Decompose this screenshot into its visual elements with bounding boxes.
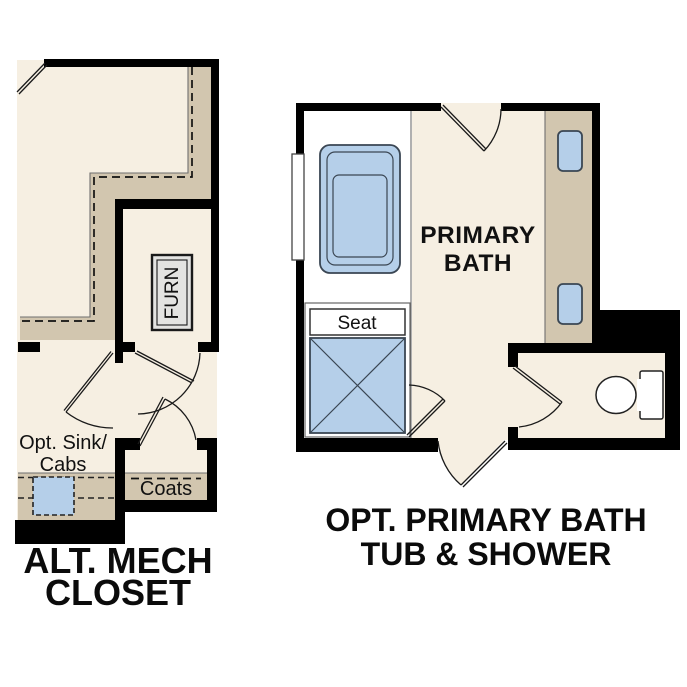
coats-label: Coats (140, 478, 192, 500)
hall-floor (17, 352, 217, 438)
opt-sink-label-line1: Opt. Sink/ (19, 432, 107, 454)
right-plan-title-line2: TUB & SHOWER (361, 536, 612, 572)
toilet-bowl (596, 377, 636, 414)
alt-mech-closet-plan: FURN Opt. Sink/ Cabs Coats ALT. MECH CLO… (15, 59, 219, 613)
bathtub (320, 145, 400, 273)
room-label-line1: PRIMARY (420, 222, 536, 249)
floorplan-canvas: FURN Opt. Sink/ Cabs Coats ALT. MECH CLO… (0, 0, 687, 687)
coats-door-opening (140, 438, 197, 452)
vanity-counter (545, 111, 592, 345)
seat-label: Seat (337, 313, 377, 334)
vanity-sink-bottom (558, 284, 582, 324)
toilet-door-opening (508, 367, 518, 427)
right-plan-title-line1: OPT. PRIMARY BATH (325, 502, 646, 538)
opt-primary-bath-plan: Seat PRIMARY BATH O (292, 103, 680, 572)
room-label-line2: BATH (444, 250, 512, 277)
shower-enclosure: Seat (305, 303, 410, 437)
toilet-neck (637, 379, 646, 411)
opt-sink-label-line2: Cabs (40, 454, 87, 476)
window (292, 154, 304, 260)
left-plan-title-line2: CLOSET (45, 572, 191, 613)
bathtub-outer (320, 145, 400, 273)
top-door-opening (441, 103, 501, 111)
furnace-label: FURN (162, 267, 183, 320)
opt-sink-counter (18, 473, 115, 520)
furnace-unit: FURN (152, 255, 192, 330)
optional-sink (33, 477, 74, 515)
vanity-sink-top (558, 131, 582, 171)
